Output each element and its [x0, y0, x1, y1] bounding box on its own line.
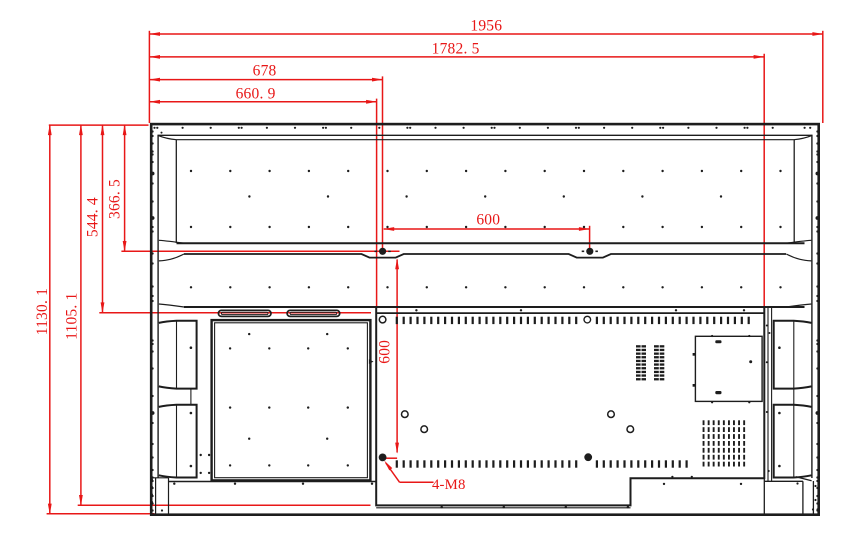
svg-text:678: 678: [253, 62, 277, 79]
svg-text:366. 5: 366. 5: [107, 179, 124, 219]
svg-text:1956: 1956: [470, 18, 502, 35]
svg-text:544. 4: 544. 4: [85, 197, 102, 237]
svg-text:1130. 1: 1130. 1: [34, 288, 51, 335]
svg-text:660. 9: 660. 9: [236, 86, 276, 103]
svg-text:1105. 1: 1105. 1: [63, 293, 80, 340]
svg-text:600: 600: [476, 211, 500, 228]
svg-text:4-M8: 4-M8: [432, 477, 466, 493]
svg-text:1782. 5: 1782. 5: [432, 40, 480, 57]
svg-text:600: 600: [377, 340, 394, 364]
